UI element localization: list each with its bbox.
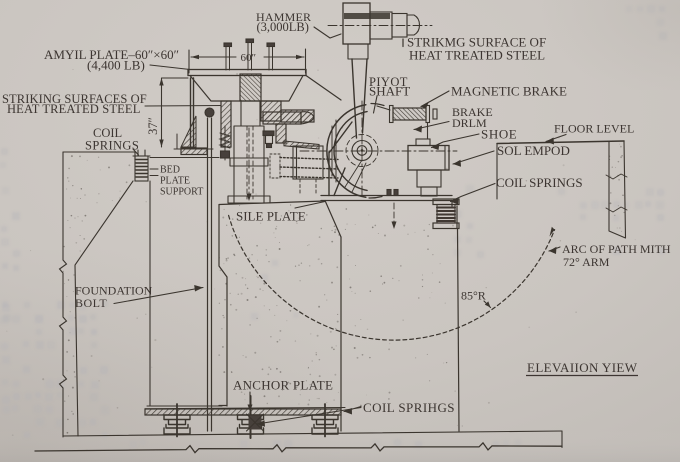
svg-text:85°R: 85°R	[461, 289, 486, 303]
svg-text:SHAFT: SHAFT	[369, 84, 410, 99]
svg-text:ANCHOR PLATE: ANCHOR PLATE	[233, 378, 333, 393]
svg-text:72° ARM: 72° ARM	[563, 255, 610, 269]
svg-text:COIL SPRINGS: COIL SPRINGS	[496, 175, 583, 190]
svg-text:(3,000LB): (3,000LB)	[257, 20, 309, 34]
svg-text:FLOOR LEVEL: FLOOR LEVEL	[554, 122, 634, 136]
svg-text:SILE PLATE: SILE PLATE	[236, 209, 306, 224]
svg-text:MAGNETIC BRAKE: MAGNETIC BRAKE	[451, 84, 567, 99]
svg-text:SPRINGS: SPRINGS	[85, 139, 139, 153]
svg-text:HEAT TREATED STEEL: HEAT TREATED STEEL	[7, 102, 140, 116]
svg-text:PLATE: PLATE	[160, 176, 190, 187]
svg-text:SUPPORT: SUPPORT	[160, 187, 203, 198]
svg-text:ELEVAIION YIEW: ELEVAIION YIEW	[527, 360, 638, 375]
svg-text:60″: 60″	[241, 52, 257, 64]
svg-text:37″: 37″	[146, 117, 160, 135]
svg-text:(4,400 LB): (4,400 LB)	[87, 58, 145, 73]
svg-text:BED: BED	[160, 165, 180, 176]
svg-text:BOLT: BOLT	[75, 296, 107, 310]
svg-text:COIL SPRIHGS: COIL SPRIHGS	[363, 400, 455, 415]
svg-text:SOL EMPOD: SOL EMPOD	[497, 143, 570, 158]
svg-text:ARC OF PATH MITH: ARC OF PATH MITH	[562, 242, 671, 256]
svg-text:HEAT TREATED STEEL: HEAT TREATED STEEL	[409, 48, 545, 63]
svg-text:SHOE: SHOE	[481, 127, 517, 142]
